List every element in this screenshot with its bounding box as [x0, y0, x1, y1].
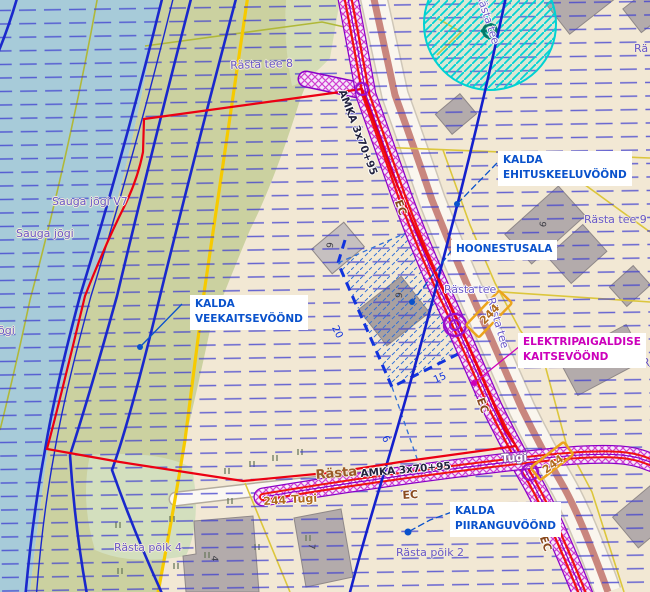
- annotation-piiranguvoond: KALDA PIIRANGUVÖÖND: [450, 502, 561, 537]
- map-canvas[interactable]: Rästa tee 8 Rästa tee 9 Rästa tee 6 Räst…: [0, 0, 650, 592]
- annotation-elektripaigaldise: ELEKTRIPAIGALDISE KAITSEVÖÖND: [518, 333, 646, 368]
- annotation-line: VEEKAITSEVÖÖND: [195, 312, 303, 327]
- annotation-line: KALDA: [195, 297, 303, 312]
- annotation-line: KALDA: [455, 504, 556, 519]
- corridor-stub: [306, 79, 358, 90]
- annotation-hoonestusala: HOONESTUSALA: [451, 240, 557, 260]
- annotation-ehituskeeluvoond: KALDA EHITUSKEELUVÖÖND: [498, 151, 632, 186]
- annotation-line: EHITUSKEELUVÖÖND: [503, 168, 627, 183]
- annotation-line: HOONESTUSALA: [456, 242, 552, 257]
- annotation-line: PIIRANGUVÖÖND: [455, 519, 556, 534]
- annotation-veekaitsevoond: KALDA VEEKAITSEVÖÖND: [190, 295, 308, 330]
- annotation-line: KALDA: [503, 153, 627, 168]
- annotation-line: KAITSEVÖÖND: [523, 350, 641, 365]
- annotation-line: ELEKTRIPAIGALDISE: [523, 335, 641, 350]
